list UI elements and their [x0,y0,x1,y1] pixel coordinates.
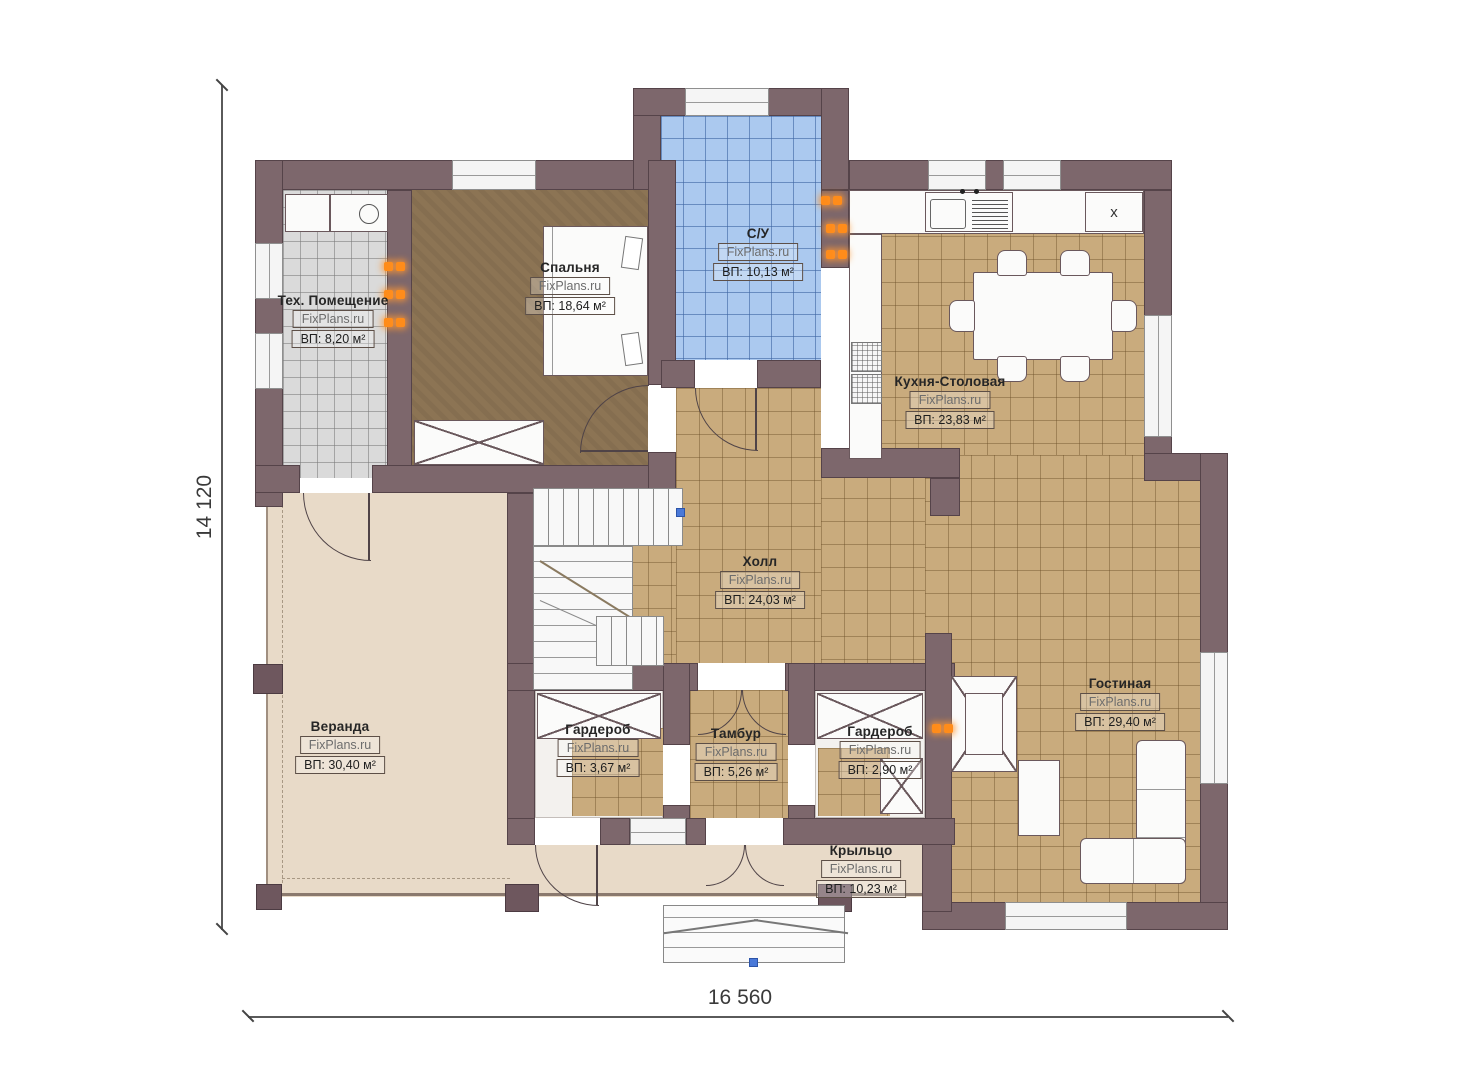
room-area: ВП: 10,23 м² [816,880,906,898]
entry-steps [663,905,845,963]
sink-basin [930,199,966,229]
washer-drum [359,204,379,224]
room-label: Гардероб FixPlans.ru ВП: 2,90 м² [839,724,922,779]
room-label: Гостиная FixPlans.ru ВП: 29,40 м² [1075,676,1165,731]
room-name: Гостиная [1075,676,1165,691]
room-name: Спальня [525,260,615,275]
wall-bathroom-bump-right [821,88,849,190]
veranda-post [256,884,282,910]
room-label: Кухня-Столовая FixPlans.ru ВП: 23,83 м² [895,374,1006,429]
window-tech-left-1 [255,243,283,299]
room-area: ВП: 3,67 м² [557,759,640,777]
room-label: Тех. Помещение FixPlans.ru ВП: 8,20 м² [278,293,389,348]
room-label: Холл FixPlans.ru ВП: 24,03 м² [715,554,805,609]
kitchen-appliance-icon [851,342,882,372]
heater-indicator [826,250,847,259]
stairs-upper-flight [533,488,683,546]
room-name: Веранда [295,719,385,734]
wall-hall-block-bottom [686,818,706,845]
wall-bedroom-right [648,452,676,493]
steps-diagonal [754,919,848,934]
room-area: ВП: 5,26 м² [695,763,778,781]
window-living-right [1200,652,1228,784]
veranda-dashed-line [282,505,283,883]
coffee-table-icon [1018,760,1060,836]
door-leaf [580,450,648,452]
hob-label: x [1110,204,1118,221]
room-area: ВП: 24,03 м² [715,591,805,609]
heater-indicator [932,724,953,733]
dining-table-icon [973,272,1113,360]
window-kitchen-top-2 [1003,160,1061,190]
room-label: Тамбур FixPlans.ru ВП: 5,26 м² [695,726,778,781]
dining-chair-icon [1060,250,1090,276]
room-name: Холл [715,554,805,569]
room-area: ВП: 18,64 м² [525,297,615,315]
dining-chair-icon [949,300,975,332]
sink-faucet [960,189,965,194]
stairs-marker [676,508,685,517]
wall-bedroom-right [648,160,676,385]
heater-indicator [821,196,842,205]
door-leaf [596,845,598,905]
room-watermark: FixPlans.ru [910,391,991,409]
room-name: Кухня-Столовая [895,374,1006,389]
room-watermark: FixPlans.ru [696,743,777,761]
kitchen-sink-icon [925,192,1013,232]
room-area: ВП: 30,40 м² [295,756,385,774]
room-watermark: FixPlans.ru [1080,693,1161,711]
room-label: Спальня FixPlans.ru ВП: 18,64 м² [525,260,615,315]
veranda-post [253,664,283,694]
wall-hall-block-bottom [600,818,630,845]
room-watermark: FixPlans.ru [840,741,921,759]
bed-pillow [621,236,643,270]
dimension-line-horizontal [248,1016,1228,1018]
wall-bathroom-bottom [661,360,695,388]
window-bedroom-top [452,160,536,190]
window-kitchen-right [1144,315,1172,437]
window-living-bottom [1005,902,1127,930]
stairs-lower-flight [596,616,664,666]
heater-indicator [826,224,847,233]
porch-post [505,884,539,912]
sofa-cushion-line [1137,789,1185,790]
room-label: Веранда FixPlans.ru ВП: 30,40 м² [295,719,385,774]
floor-veranda [267,493,517,897]
room-name: Гардероб [839,724,922,739]
floor-hall [821,475,925,663]
fireplace-inner [965,693,1003,755]
wall-pillar [930,478,960,516]
kitchen-appliance-icon [851,374,882,404]
dimension-line-vertical [221,85,223,930]
room-name: Гардероб [557,722,640,737]
room-area: ВП: 2,90 м² [839,761,922,779]
floor-plan: x [0,0,1474,1080]
room-name: Тамбур [695,726,778,741]
room-watermark: FixPlans.ru [293,310,374,328]
wall-wardrobe1-tambour [663,663,690,745]
sofa-icon [1080,838,1186,884]
dining-chair-icon [1111,300,1137,332]
window-wardrobe-bottom [630,818,686,845]
room-name: Тех. Помещение [278,293,389,308]
dimension-label-height: 14 120 [193,457,217,557]
wall-bathroom-bottom [757,360,821,388]
dining-chair-icon [1060,356,1090,382]
bed-pillow [621,332,643,366]
room-area: ВП: 10,13 м² [713,263,803,281]
steps-marker [749,958,758,967]
window-bathroom-top [685,88,769,116]
sink-drainer [972,197,1008,229]
room-label: С/У FixPlans.ru ВП: 10,13 м² [713,226,803,281]
sink-faucet [974,189,979,194]
door-leaf [368,493,370,560]
veranda-edge-left [266,505,268,897]
room-area: ВП: 23,83 м² [905,411,995,429]
sofa-cushion-line [1133,839,1134,883]
wall-tambour-wardrobe2 [788,663,815,745]
heater-indicator [384,262,405,271]
room-watermark: FixPlans.ru [558,739,639,757]
bedroom-wardrobe-icon [414,420,544,465]
room-watermark: FixPlans.ru [718,243,799,261]
dimension-label-width: 16 560 [640,986,840,1010]
tech-counter [285,194,330,232]
room-watermark: FixPlans.ru [530,277,611,295]
room-label: Крыльцо FixPlans.ru ВП: 10,23 м² [816,843,906,898]
wall-block-bottom [255,465,300,493]
door-leaf [755,388,757,450]
room-name: С/У [713,226,803,241]
wall-hall-block-bottom [783,818,955,845]
washing-machine-icon [330,194,388,232]
steps-diagonal [664,919,758,934]
dining-chair-icon [997,250,1027,276]
room-area: ВП: 29,40 м² [1075,713,1165,731]
window-kitchen-top-1 [928,160,986,190]
room-watermark: FixPlans.ru [720,571,801,589]
room-watermark: FixPlans.ru [821,860,902,878]
room-label: Гардероб FixPlans.ru ВП: 3,67 м² [557,722,640,777]
room-area: ВП: 8,20 м² [292,330,375,348]
room-name: Крыльцо [816,843,906,858]
room-watermark: FixPlans.ru [300,736,381,754]
veranda-dashed-line [282,878,510,879]
wall-hall-block-bottom [507,818,535,845]
wall-tech-right [387,190,412,478]
fireplace-icon [951,676,1017,772]
kitchen-hob-icon: x [1085,192,1143,232]
wall-hall-kitchen [821,448,960,478]
